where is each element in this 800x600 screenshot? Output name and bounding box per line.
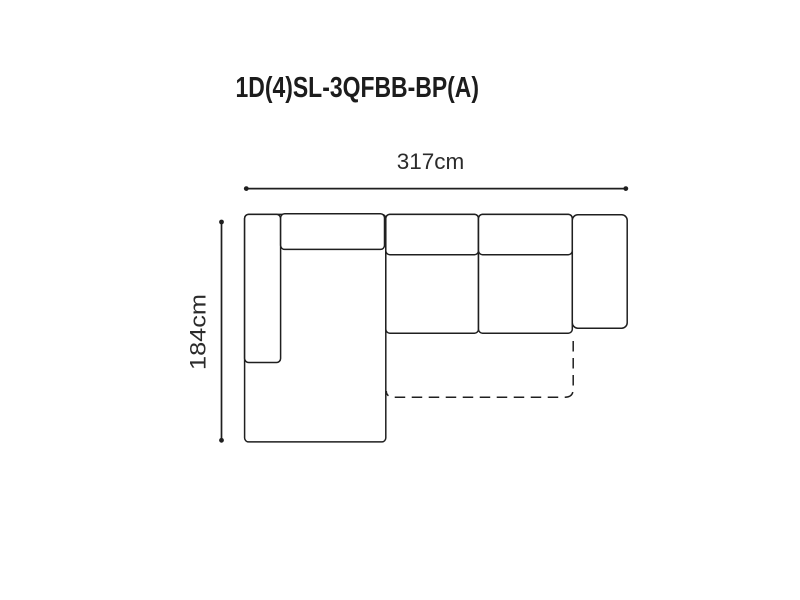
svg-text:317cm: 317cm [397,149,465,174]
svg-text:184cm: 184cm [186,294,211,370]
svg-text:1D(4)SL-3QFBB-BP(A): 1D(4)SL-3QFBB-BP(A) [236,72,480,104]
